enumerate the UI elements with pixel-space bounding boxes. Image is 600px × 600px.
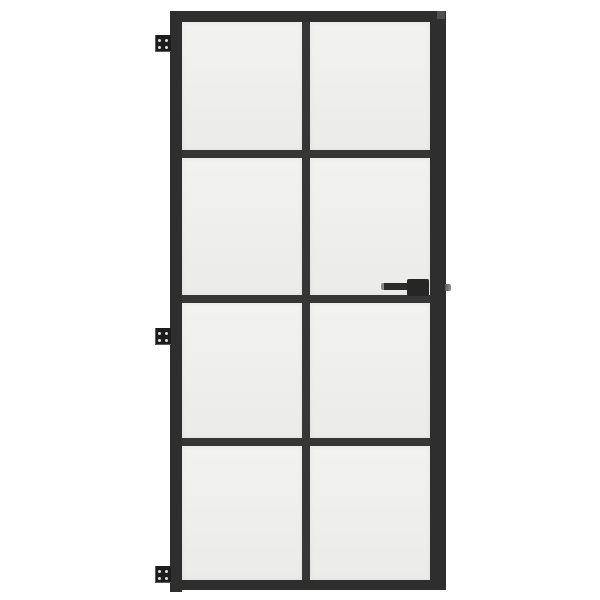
glass-pane-r3c2	[310, 303, 430, 438]
hinge-screw	[165, 577, 168, 580]
door-handle-lever	[381, 283, 408, 290]
hinge-stile-foot	[170, 590, 182, 592]
glass-pane-r1c2	[310, 22, 430, 150]
glass-pane-r2c2	[310, 158, 430, 295]
hinge-top	[155, 35, 171, 52]
hinge-screw	[165, 46, 168, 49]
hinge-screw	[158, 332, 161, 335]
hinge-screw	[158, 339, 161, 342]
glass-door	[170, 11, 446, 590]
hinge-bottom	[155, 566, 171, 583]
hinge-screw	[165, 332, 168, 335]
glass-pane-r3c1	[182, 303, 302, 438]
glass-pane-r1c1	[182, 22, 302, 150]
door-handle-base	[407, 279, 429, 296]
hinge-screw	[158, 577, 161, 580]
hinge-screw	[158, 39, 161, 42]
hinge-screw	[165, 339, 168, 342]
glazing-grid	[182, 22, 430, 580]
glass-pane-r4c2	[310, 446, 430, 580]
glass-pane-r4c1	[182, 446, 302, 580]
hinge-screw	[165, 39, 168, 42]
door-handle-spindle	[445, 284, 451, 291]
frame-corner-highlight	[437, 11, 445, 19]
product-photo-stage	[0, 0, 600, 600]
hinge-screw	[165, 570, 168, 573]
hinge-middle	[155, 328, 171, 345]
hinge-screw	[158, 46, 161, 49]
hinge-screw	[158, 570, 161, 573]
glass-pane-r2c1	[182, 158, 302, 295]
